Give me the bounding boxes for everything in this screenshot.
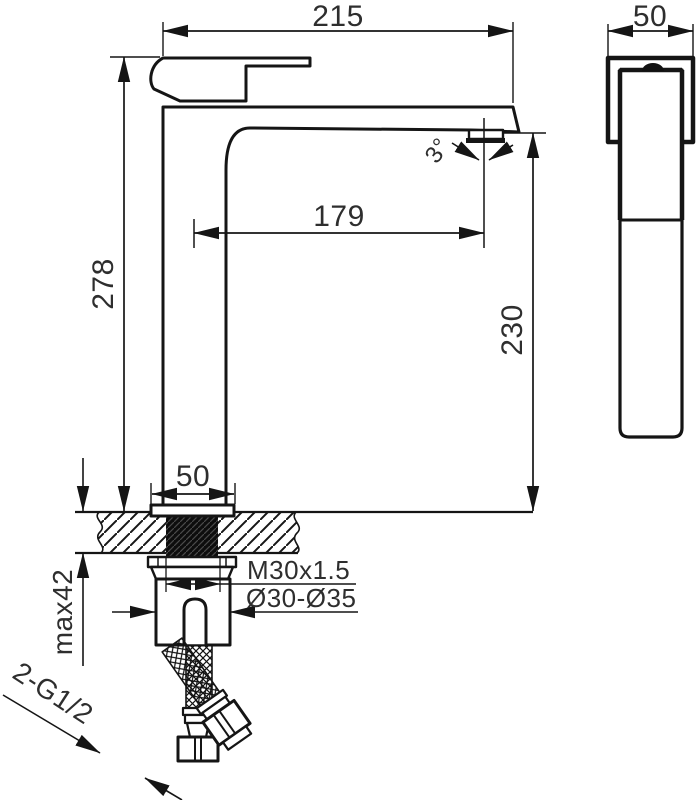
dim-mounting-thread-label: M30x1.5 (247, 555, 350, 585)
dim-body-depth-label: 50 (633, 0, 667, 33)
dim-spout-width-label: 215 (312, 0, 364, 33)
dim-hole-diameter: Ø30-Ø35 (112, 583, 358, 613)
dim-hole-diameter-label: Ø30-Ø35 (246, 583, 356, 613)
dim-total-height: 278 (87, 57, 160, 511)
hex-nut-fitting (178, 737, 218, 761)
base-plate (151, 505, 234, 516)
dim-spout-height: 230 (496, 133, 546, 511)
dim-total-height-label: 278 (87, 258, 120, 310)
dim-max-counter-thickness: max42 (47, 458, 83, 666)
dim-spout-height-label: 230 (496, 304, 529, 356)
front-view-faucet (151, 58, 519, 516)
technical-drawing-page: 215 50 278 230 179 (0, 0, 697, 800)
counter-hatch-left (97, 512, 166, 553)
side-view-faucet (608, 58, 693, 437)
dim-body-depth: 50 (608, 0, 693, 56)
countertop-section (75, 512, 533, 558)
fixing-stud (184, 599, 206, 645)
side-body-outline (620, 70, 682, 437)
dim-inlet-connection-label: 2-G1/2 (8, 656, 99, 730)
counter-hatch-right (218, 512, 299, 553)
under-counter-fixing (148, 557, 236, 645)
fixing-washer (148, 557, 236, 567)
fixing-cone (151, 567, 233, 579)
faucet-technical-drawing: 215 50 278 230 179 (0, 0, 697, 800)
dim-spout-angle-label: 3° (420, 133, 456, 168)
threaded-shank (166, 512, 218, 558)
dim-inlet-connection: 2-G1/2 (3, 656, 182, 800)
faucet-body-outline (163, 107, 519, 505)
aerator (469, 130, 503, 139)
dim-base-width-label: 50 (176, 460, 210, 493)
faucet-handle-lever (151, 58, 310, 101)
dim-spout-reach: 179 (194, 118, 484, 248)
dim-max-counter-thickness-label: max42 (47, 569, 78, 656)
dim-spout-reach-label: 179 (313, 200, 365, 233)
